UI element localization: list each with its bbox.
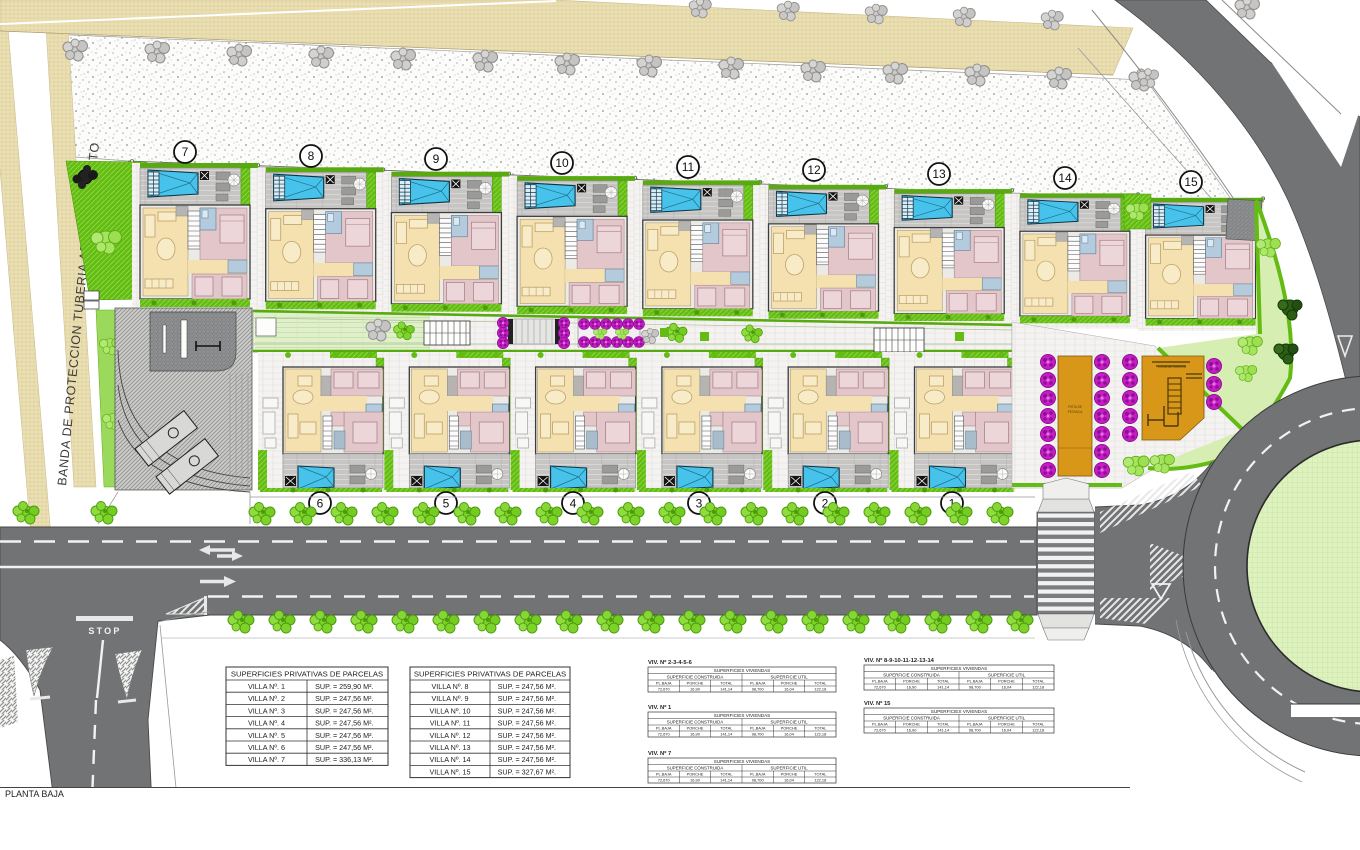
svg-text:9: 9 xyxy=(433,152,440,166)
svg-text:TOTAL: TOTAL xyxy=(814,772,827,777)
svg-text:SUPERFICIES VIVIENDAS: SUPERFICIES VIVIENDAS xyxy=(714,713,770,718)
svg-text:TOTAL: TOTAL xyxy=(1032,722,1045,727)
svg-text:98,700: 98,700 xyxy=(752,732,765,737)
svg-text:7: 7 xyxy=(182,145,189,159)
svg-text:SUP. = 247,56 M².: SUP. = 247,56 M². xyxy=(315,694,373,703)
svg-text:98,700: 98,700 xyxy=(752,778,765,783)
svg-text:SUPERFICIES VIVIENDAS: SUPERFICIES VIVIENDAS xyxy=(714,759,770,764)
svg-text:PL.BAJA: PL.BAJA xyxy=(750,726,766,731)
svg-text:16,04: 16,04 xyxy=(784,687,795,692)
svg-text:16,04: 16,04 xyxy=(784,778,795,783)
svg-text:6: 6 xyxy=(317,497,324,511)
svg-text:4: 4 xyxy=(570,497,577,511)
svg-text:141,14: 141,14 xyxy=(937,728,950,733)
svg-text:PL.BAJA: PL.BAJA xyxy=(656,772,672,777)
svg-text:TOTAL: TOTAL xyxy=(814,681,827,686)
svg-text:141,14: 141,14 xyxy=(720,778,733,783)
svg-text:VILLA Nº. 5: VILLA Nº. 5 xyxy=(248,731,285,740)
svg-text:PORCHE: PORCHE xyxy=(998,722,1015,727)
svg-text:VILLA Nº. 3: VILLA Nº. 3 xyxy=(248,706,285,715)
svg-text:16,90: 16,90 xyxy=(907,728,918,733)
svg-text:VILLA Nº. 7: VILLA Nº. 7 xyxy=(248,755,285,764)
svg-text:VIV. Nº 8-9-10-11-12-13-14: VIV. Nº 8-9-10-11-12-13-14 xyxy=(864,658,935,664)
svg-text:SUP. = 247,56 M².: SUP. = 247,56 M². xyxy=(315,719,373,728)
svg-text:122,18: 122,18 xyxy=(1032,728,1044,733)
svg-text:PLANTA BAJA: PLANTA BAJA xyxy=(5,789,64,799)
svg-text:SUP. = 247,56 M².: SUP. = 247,56 M². xyxy=(498,694,556,703)
svg-text:PL.BAJA: PL.BAJA xyxy=(872,722,888,727)
svg-text:SUP. = 247,56 M².: SUP. = 247,56 M². xyxy=(498,755,556,764)
svg-text:72,670: 72,670 xyxy=(658,732,671,737)
svg-text:VILLA Nº. 14: VILLA Nº. 14 xyxy=(430,755,471,764)
svg-text:PETANCA: PETANCA xyxy=(1068,410,1084,414)
svg-text:PORCHE: PORCHE xyxy=(903,722,920,727)
svg-text:PL.BAJA: PL.BAJA xyxy=(750,772,766,777)
svg-text:16,04: 16,04 xyxy=(1002,685,1013,690)
svg-text:VIV. Nº 2-3-4-5-6: VIV. Nº 2-3-4-5-6 xyxy=(648,660,693,666)
svg-text:PORCHE: PORCHE xyxy=(781,681,798,686)
svg-text:72,670: 72,670 xyxy=(658,778,671,783)
svg-text:SUP. = 247,56 M².: SUP. = 247,56 M². xyxy=(315,731,373,740)
svg-text:16,90: 16,90 xyxy=(690,778,701,783)
svg-text:16,90: 16,90 xyxy=(690,687,701,692)
svg-text:8: 8 xyxy=(308,149,315,163)
svg-text:STOP: STOP xyxy=(88,626,121,636)
svg-text:98,700: 98,700 xyxy=(969,728,982,733)
svg-text:72,670: 72,670 xyxy=(874,685,887,690)
svg-text:PORCHE: PORCHE xyxy=(687,726,704,731)
svg-text:SUPERFICIE UTIL: SUPERFICIE UTIL xyxy=(988,716,1026,721)
svg-text:TOTAL: TOTAL xyxy=(1032,679,1045,684)
svg-text:SUP. = 247,56 M².: SUP. = 247,56 M². xyxy=(315,743,373,752)
svg-text:SUPERFICIE CONSTRUIDA: SUPERFICIE CONSTRUIDA xyxy=(667,720,724,725)
svg-text:SUPERFICIE UTIL: SUPERFICIE UTIL xyxy=(770,766,808,771)
svg-text:PISTA DE: PISTA DE xyxy=(1068,405,1082,409)
svg-text:98,700: 98,700 xyxy=(752,687,765,692)
svg-text:SUP. = 247,56 M².: SUP. = 247,56 M². xyxy=(498,743,556,752)
svg-text:VILLA Nº. 2: VILLA Nº. 2 xyxy=(248,694,285,703)
svg-text:16,90: 16,90 xyxy=(907,685,918,690)
svg-text:72,670: 72,670 xyxy=(874,728,887,733)
svg-text:SUP. = 247,56 M².: SUP. = 247,56 M². xyxy=(315,706,373,715)
svg-text:SUPERFICIES VIVIENDAS: SUPERFICIES VIVIENDAS xyxy=(931,709,987,714)
svg-text:VILLA Nº. 4: VILLA Nº. 4 xyxy=(248,719,285,728)
svg-text:VIV. Nº 15: VIV. Nº 15 xyxy=(864,701,891,707)
svg-text:TOTAL: TOTAL xyxy=(937,722,950,727)
svg-text:SUPERFICIES VIVIENDAS: SUPERFICIES VIVIENDAS xyxy=(714,668,770,673)
svg-text:SUP. = 327,67 M².: SUP. = 327,67 M². xyxy=(498,767,556,776)
svg-text:141,14: 141,14 xyxy=(720,732,733,737)
svg-text:98,700: 98,700 xyxy=(969,685,982,690)
svg-text:PORCHE: PORCHE xyxy=(998,679,1015,684)
svg-text:VILLA Nº. 11: VILLA Nº. 11 xyxy=(430,719,470,728)
svg-text:SUPERFICIES PRIVATIVAS DE PARC: SUPERFICIES PRIVATIVAS DE PARCELAS xyxy=(414,670,566,679)
svg-text:SUP. = 247,56 M².: SUP. = 247,56 M². xyxy=(498,706,556,715)
svg-text:16,90: 16,90 xyxy=(690,732,701,737)
svg-text:PORCHE: PORCHE xyxy=(781,726,798,731)
svg-text:VILLA Nº. 9: VILLA Nº. 9 xyxy=(432,694,469,703)
svg-text:TOTAL: TOTAL xyxy=(937,679,950,684)
svg-text:SUPERFICIE CONSTRUIDA: SUPERFICIE CONSTRUIDA xyxy=(667,766,724,771)
svg-text:SUPERFICIE UTIL: SUPERFICIE UTIL xyxy=(770,675,808,680)
svg-text:PL.BAJA: PL.BAJA xyxy=(750,681,766,686)
svg-text:PORCHE: PORCHE xyxy=(781,772,798,777)
svg-text:TOTAL: TOTAL xyxy=(720,726,733,731)
svg-text:SUPERFICIE UTIL: SUPERFICIE UTIL xyxy=(770,720,808,725)
svg-text:SUPERFICIES PRIVATIVAS DE PARC: SUPERFICIES PRIVATIVAS DE PARCELAS xyxy=(231,670,383,679)
svg-text:VILLA Nº. 12: VILLA Nº. 12 xyxy=(430,731,471,740)
svg-text:TOTAL: TOTAL xyxy=(814,726,827,731)
svg-text:VILLA Nº. 6: VILLA Nº. 6 xyxy=(248,743,285,752)
svg-text:SUPERFICIE CONSTRUIDA: SUPERFICIE CONSTRUIDA xyxy=(883,673,940,678)
svg-text:PL.BAJA: PL.BAJA xyxy=(967,679,983,684)
svg-text:16,04: 16,04 xyxy=(1002,728,1013,733)
svg-text:TOTAL: TOTAL xyxy=(720,772,733,777)
svg-text:PORCHE: PORCHE xyxy=(687,772,704,777)
svg-text:SUPERFICIE UTIL: SUPERFICIE UTIL xyxy=(988,673,1026,678)
svg-text:VILLA Nº. 15: VILLA Nº. 15 xyxy=(430,767,471,776)
svg-text:PL.BAJA: PL.BAJA xyxy=(872,679,888,684)
svg-text:12: 12 xyxy=(807,163,821,177)
svg-text:PL.BAJA: PL.BAJA xyxy=(967,722,983,727)
svg-text:VIV. Nº 7: VIV. Nº 7 xyxy=(648,751,671,757)
svg-text:VILLA Nº. 13: VILLA Nº. 13 xyxy=(430,743,471,752)
svg-text:72,670: 72,670 xyxy=(658,687,671,692)
svg-text:13: 13 xyxy=(932,167,946,181)
svg-text:PORCHE: PORCHE xyxy=(903,679,920,684)
svg-text:16,04: 16,04 xyxy=(784,732,795,737)
svg-text:PORCHE: PORCHE xyxy=(687,681,704,686)
svg-text:VIV. Nº 1: VIV. Nº 1 xyxy=(648,705,672,711)
svg-text:122,18: 122,18 xyxy=(814,687,826,692)
svg-text:122,18: 122,18 xyxy=(814,778,826,783)
svg-text:141,14: 141,14 xyxy=(937,685,950,690)
svg-text:TOTAL: TOTAL xyxy=(720,681,733,686)
svg-text:11: 11 xyxy=(682,160,695,174)
svg-text:SUPERFICIE CONSTRUIDA: SUPERFICIE CONSTRUIDA xyxy=(667,675,724,680)
svg-text:SUP. = 247,56 M².: SUP. = 247,56 M². xyxy=(498,731,556,740)
svg-text:SUP. = 247,56 M².: SUP. = 247,56 M². xyxy=(498,682,556,691)
svg-text:SUPERFICIES VIVIENDAS: SUPERFICIES VIVIENDAS xyxy=(931,666,987,671)
svg-text:122,18: 122,18 xyxy=(814,732,826,737)
svg-text:15: 15 xyxy=(1184,175,1198,189)
svg-text:122,18: 122,18 xyxy=(1032,685,1044,690)
svg-text:VILLA Nº. 1: VILLA Nº. 1 xyxy=(248,682,285,691)
svg-text:SUP. = 336,13 M².: SUP. = 336,13 M². xyxy=(315,755,373,764)
svg-text:VILLA Nº. 10: VILLA Nº. 10 xyxy=(430,706,471,715)
svg-text:SUPERFICIE CONSTRUIDA: SUPERFICIE CONSTRUIDA xyxy=(883,716,940,721)
svg-text:SUP. = 247,56 M².: SUP. = 247,56 M². xyxy=(498,719,556,728)
svg-text:5: 5 xyxy=(443,497,450,511)
svg-text:VILLA Nº. 8: VILLA Nº. 8 xyxy=(432,682,469,691)
svg-text:PL.BAJA: PL.BAJA xyxy=(656,726,672,731)
svg-text:SUP. = 259,90 M².: SUP. = 259,90 M². xyxy=(315,682,373,691)
svg-text:14: 14 xyxy=(1058,171,1072,185)
svg-text:10: 10 xyxy=(555,156,569,170)
svg-text:PL.BAJA: PL.BAJA xyxy=(656,681,672,686)
svg-text:141,14: 141,14 xyxy=(720,687,733,692)
